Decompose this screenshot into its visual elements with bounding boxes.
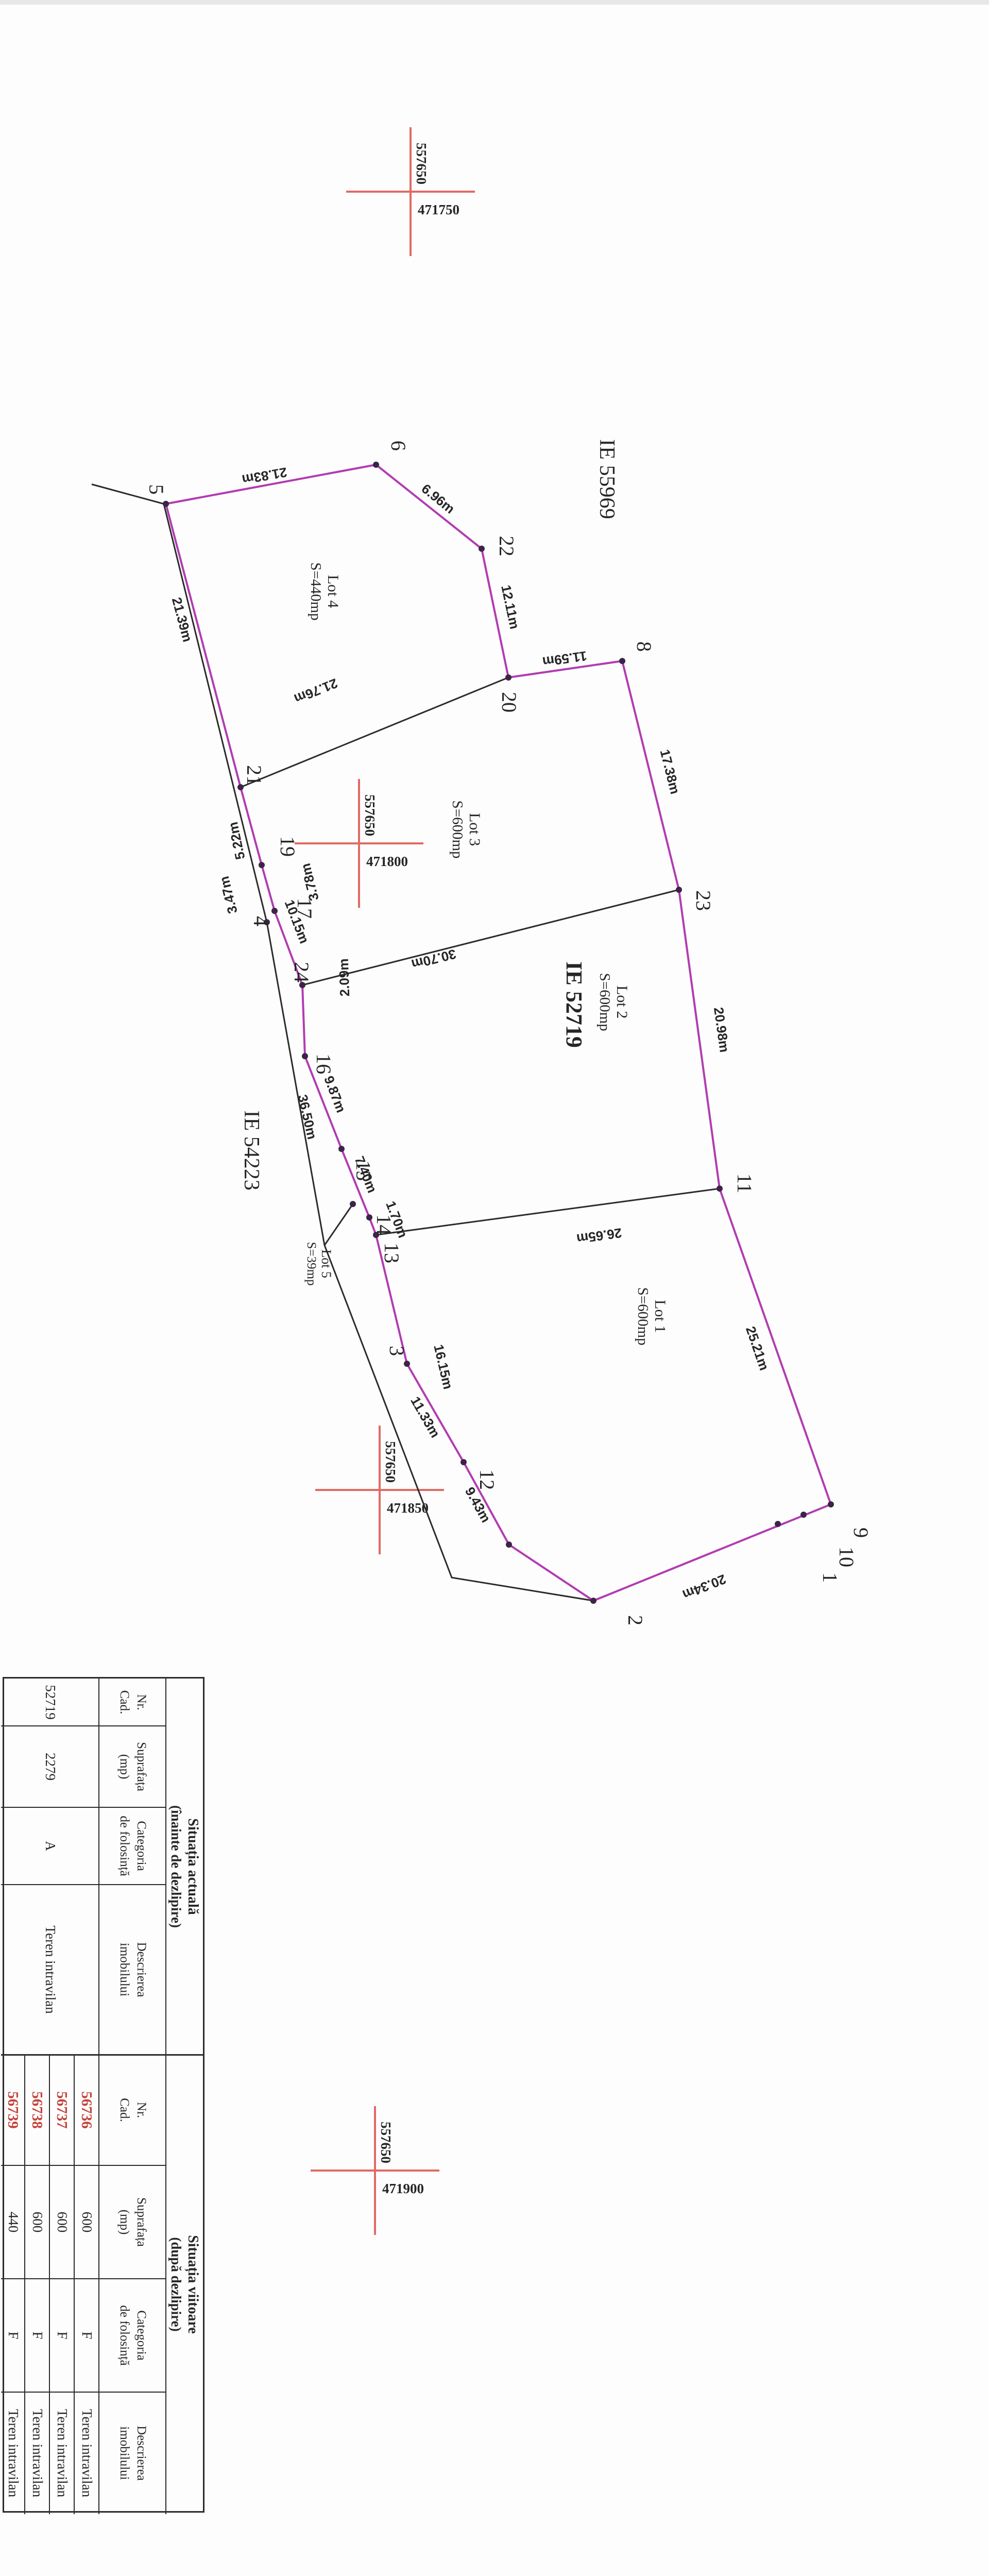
table-column-line	[1, 2278, 166, 2279]
future-nr-cad: 56739	[0, 2056, 28, 2164]
column-header: Cad.	[109, 1681, 140, 1724]
current-descriere: Teren intravilan	[35, 1886, 65, 2053]
table-column-line	[1, 2165, 166, 2166]
column-header: (mp)	[109, 1728, 140, 1805]
table-column-line	[1, 1884, 166, 1885]
land-division-table: Situația actuală(înainte de dezlipire)Si…	[0, 0, 989, 2576]
scanned-cadastral-plan-page: 5576504717505576504718005576504718505576…	[0, 0, 989, 2576]
column-header: de folosință	[109, 2281, 140, 2390]
table-column-line	[1, 2392, 166, 2393]
current-section-subtitle: (înainte de dezlipire)	[160, 1686, 191, 2047]
table-column-line	[1, 1807, 166, 1808]
table-frame: Situația actuală(înainte de dezlipire)Si…	[3, 1677, 204, 2513]
table-column-line	[1, 1725, 166, 1726]
rotated-plan-content: 5576504717505576504718005576504718505576…	[0, 0, 989, 2576]
future-descriere: Teren intravilan	[0, 2394, 28, 2513]
future-section-subtitle: (după dezlipire)	[160, 2078, 191, 2490]
column-header: (mp)	[109, 2167, 140, 2277]
column-header: de folosință	[109, 1809, 140, 1883]
column-header: Cad.	[109, 2057, 140, 2163]
current-suprafata: 2279	[35, 1727, 65, 1806]
future-categoria: F	[0, 2280, 28, 2391]
current-nr-cad: 52719	[35, 1680, 65, 1724]
column-header: imobilului	[109, 2394, 140, 2512]
future-suprafata: 440	[0, 2167, 28, 2277]
current-categoria: A	[35, 1809, 65, 1883]
column-header: imobilului	[109, 1887, 140, 2053]
table-section-divider	[1, 2054, 203, 2056]
